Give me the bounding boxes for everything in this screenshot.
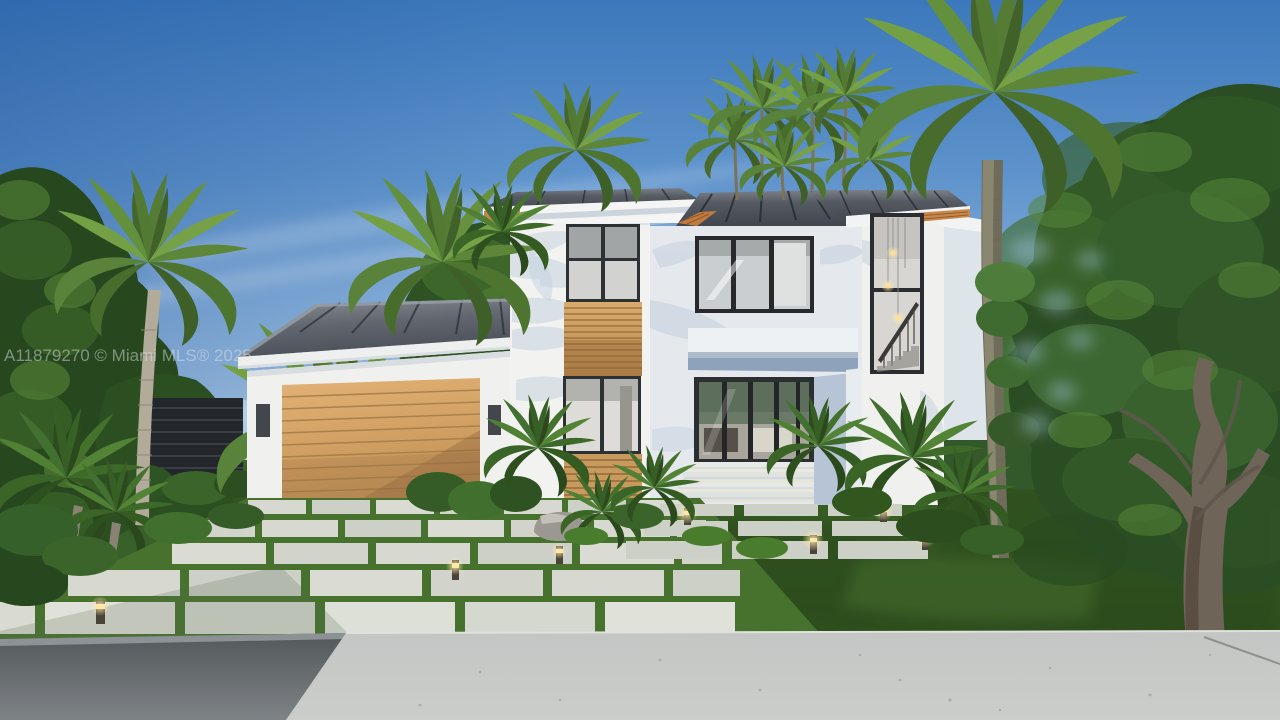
svg-text:A11879270 © Miami MLS® 2025: A11879270 © Miami MLS® 2025	[4, 346, 252, 365]
